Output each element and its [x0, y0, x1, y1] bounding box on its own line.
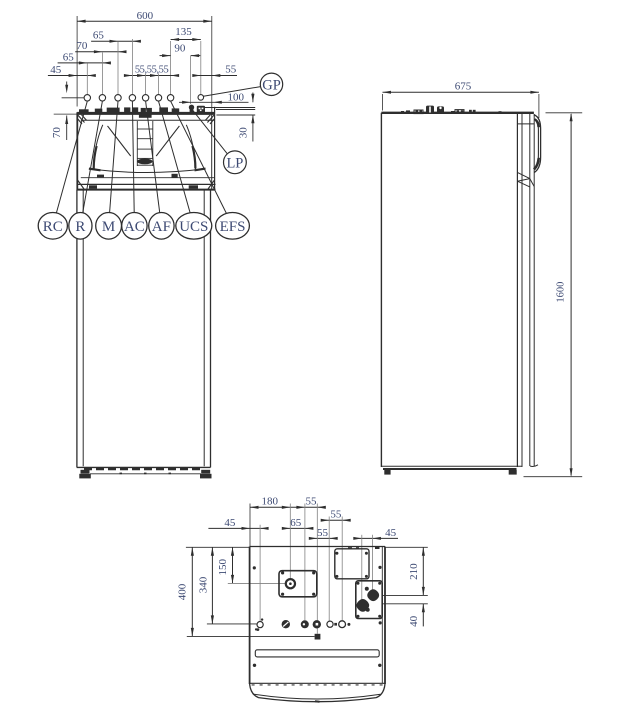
svg-text:400: 400: [177, 583, 189, 600]
svg-text:65: 65: [63, 51, 75, 63]
svg-text:180: 180: [262, 496, 279, 508]
svg-text:LP: LP: [226, 155, 243, 171]
svg-text:70: 70: [51, 127, 63, 139]
svg-text:RC: RC: [43, 219, 63, 235]
svg-text:90: 90: [174, 43, 186, 55]
svg-text:55: 55: [225, 64, 237, 76]
svg-text:45: 45: [224, 517, 236, 529]
svg-text:210: 210: [408, 563, 420, 580]
svg-text:55: 55: [306, 496, 318, 508]
svg-text:55: 55: [317, 527, 329, 539]
svg-text:55,55,55: 55,55,55: [135, 65, 169, 76]
svg-text:135: 135: [175, 26, 192, 38]
svg-text:1600: 1600: [556, 282, 567, 303]
svg-text:M: M: [102, 219, 115, 235]
svg-text:55: 55: [330, 509, 342, 521]
svg-text:45: 45: [50, 64, 62, 76]
svg-text:UCS: UCS: [179, 219, 208, 235]
svg-text:600: 600: [137, 10, 154, 22]
svg-text:R: R: [75, 219, 85, 235]
svg-text:70: 70: [76, 40, 88, 52]
svg-text:30: 30: [237, 127, 249, 139]
svg-text:GP: GP: [262, 77, 281, 93]
svg-text:AC: AC: [124, 219, 145, 235]
svg-text:65: 65: [93, 30, 105, 42]
svg-text:150: 150: [217, 558, 229, 575]
svg-text:AF: AF: [152, 219, 171, 235]
svg-text:340: 340: [198, 576, 210, 593]
svg-text:40: 40: [408, 615, 420, 627]
svg-text:65: 65: [290, 517, 302, 529]
svg-text:675: 675: [455, 81, 472, 93]
svg-text:45: 45: [385, 527, 397, 539]
svg-text:100: 100: [227, 91, 244, 103]
svg-text:EFS: EFS: [220, 219, 246, 235]
